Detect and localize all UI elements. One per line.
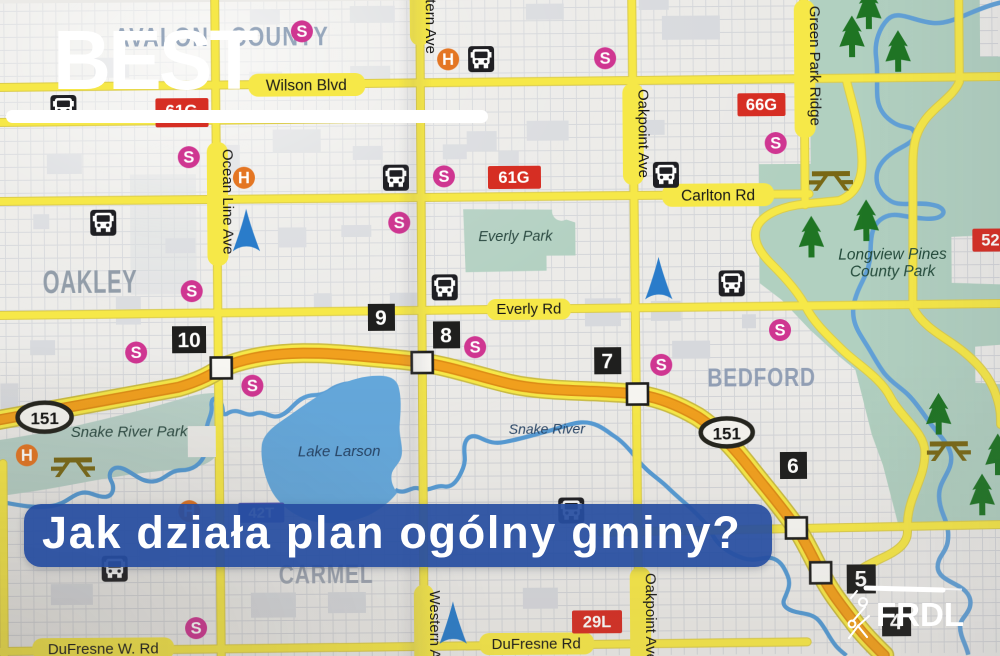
svg-text:FRDL: FRDL	[876, 596, 964, 633]
